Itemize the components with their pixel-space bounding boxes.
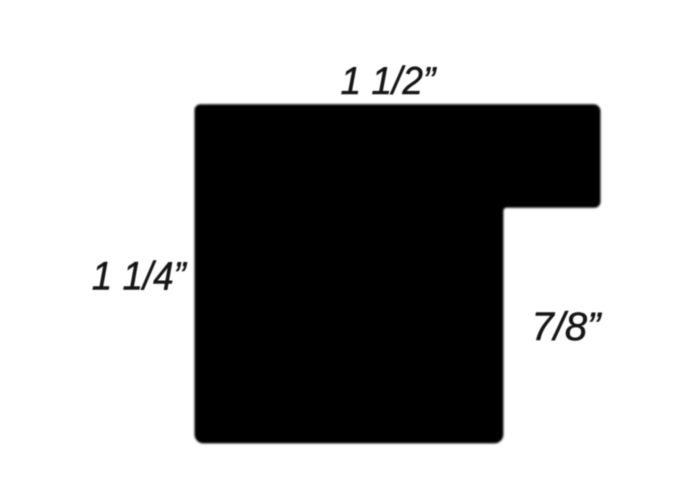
svg-text:7/8”: 7/8” [532, 305, 603, 349]
svg-text:1 1/4”: 1 1/4” [92, 255, 188, 299]
svg-text:1 1/2”: 1 1/2” [341, 60, 438, 103]
